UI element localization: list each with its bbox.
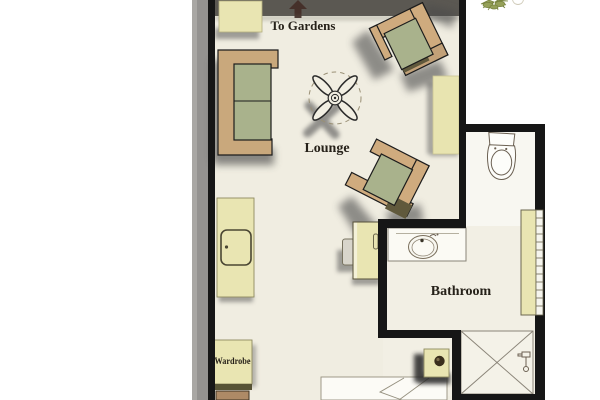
svg-text:To Gardens: To Gardens: [271, 18, 336, 33]
svg-text:Bathroom: Bathroom: [431, 284, 492, 299]
svg-text:Lounge: Lounge: [304, 141, 349, 156]
svg-text:Wardrobe: Wardrobe: [215, 356, 251, 366]
